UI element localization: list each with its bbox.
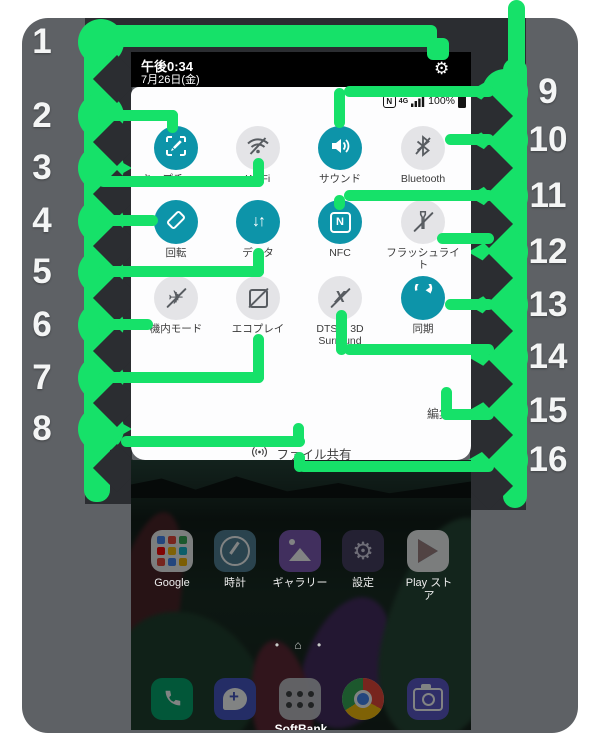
step-number-3: 3 <box>18 146 66 190</box>
notification-shade-header: 午後0:34 7月26日(金) ⚙ <box>131 52 471 87</box>
tile-sound[interactable]: サウンド <box>302 126 378 186</box>
step-number-15: 15 <box>524 389 572 433</box>
connector-11-stub <box>334 195 345 210</box>
connector-14-stub <box>336 310 347 355</box>
tile-label: NFC <box>302 248 378 260</box>
rotation-icon <box>164 208 188 237</box>
tile-rotation[interactable]: 回転 <box>138 200 214 260</box>
tile-label: 同期 <box>385 324 461 336</box>
connector-8-fileshare <box>121 436 305 447</box>
network-4g-icon: 4G <box>399 98 408 105</box>
connector-7-ecoplay <box>98 372 264 383</box>
connector-3-stub <box>253 158 264 187</box>
connector-12-flashlight <box>437 233 494 244</box>
connector-5-data <box>98 266 264 277</box>
settings-gear-icon[interactable]: ⚙ <box>434 60 449 77</box>
step-number-9: 9 <box>524 70 572 114</box>
status-date: 7月26日(金) <box>141 71 200 87</box>
step-number-4: 4 <box>18 199 66 243</box>
sound-icon <box>328 134 352 163</box>
tile-label: サウンド <box>302 174 378 186</box>
step-number-14: 14 <box>524 335 572 379</box>
capture-plus-icon <box>164 134 188 163</box>
tile-label: 回転 <box>138 248 214 260</box>
app-label: Google <box>140 577 204 590</box>
connector-1-stub <box>427 38 449 60</box>
step-number-2: 2 <box>18 94 66 138</box>
connector-6-airplane <box>98 319 153 330</box>
connector-2-capture <box>98 110 178 121</box>
connector-9-stub <box>334 88 345 128</box>
step-number-1: 1 <box>18 20 66 64</box>
dock-label: SoftBank <box>251 722 351 730</box>
step-number-7: 7 <box>18 356 66 400</box>
tile-label: フラッシュライト <box>385 248 461 272</box>
step-number-8: 8 <box>18 407 66 451</box>
connector-7-stub <box>253 334 264 383</box>
step-number-12: 12 <box>524 230 572 274</box>
connector-5-stub <box>253 248 264 277</box>
connector-2-stub <box>167 110 178 133</box>
connector-13-sync <box>445 299 494 310</box>
app-label: Play ストア <box>402 577 456 602</box>
home-screen-wallpaper: ⚙ Google 時計 ギャラリー 設定 Play ストア • ⌂ • Soft… <box>131 460 471 730</box>
connector-3-wifi <box>98 176 264 187</box>
phone-screenshot: 午後0:34 7月26日(金) ⚙ N 4G 100% キャプチャー+ Wi-F… <box>131 52 471 730</box>
connector-10-bluetooth <box>445 134 494 145</box>
step-number-13: 13 <box>524 283 572 327</box>
nfc-icon: N <box>330 212 351 233</box>
bluetooth-off-icon <box>411 134 435 163</box>
connector-14-dts <box>344 344 494 355</box>
connector-9-sound <box>344 86 494 97</box>
tile-eco-play[interactable]: エコプレイ <box>220 276 296 336</box>
connector-4-rotation <box>98 215 158 226</box>
broadcast-icon <box>250 446 269 461</box>
mobile-data-icon: ↓↑ <box>252 213 264 231</box>
connector-15-edit <box>441 409 494 420</box>
app-label: ギャラリー <box>268 577 332 590</box>
connector-8-stub <box>293 423 304 447</box>
connector-11-nfc <box>344 190 494 201</box>
connector-16-chevron <box>298 461 494 472</box>
sync-icon <box>411 284 435 313</box>
tile-label: Bluetooth <box>385 174 461 186</box>
step-number-16: 16 <box>524 438 572 482</box>
home-page-indicator[interactable]: • ⌂ • <box>131 638 471 652</box>
step-number-5: 5 <box>18 250 66 294</box>
connector-16-stub <box>294 452 305 472</box>
app-label: 設定 <box>331 577 395 590</box>
connector-1-settings-gear <box>103 25 437 47</box>
step-number-6: 6 <box>18 303 66 347</box>
app-label: 時計 <box>203 577 267 590</box>
step-number-10: 10 <box>524 118 572 162</box>
step-number-11: 11 <box>524 174 572 218</box>
